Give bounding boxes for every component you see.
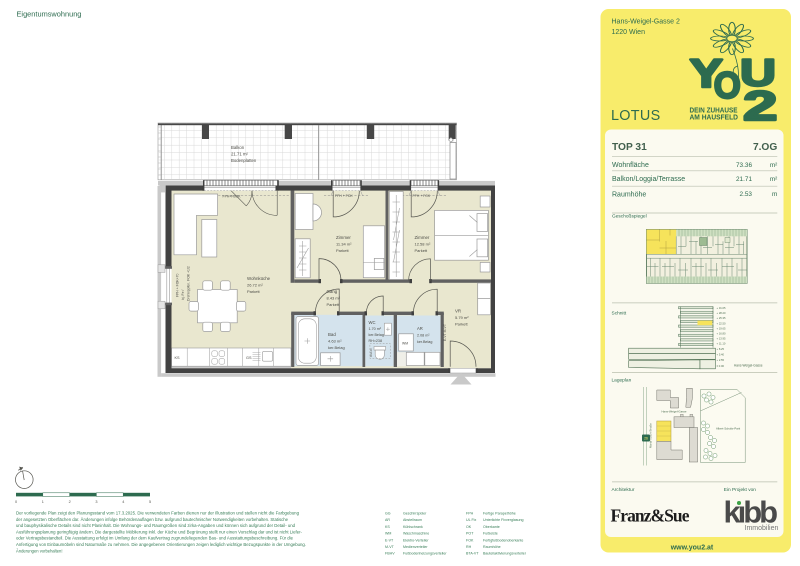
svg-text:Zimmer: Zimmer <box>415 235 430 240</box>
svg-text:ker.Belag: ker.Belag <box>328 345 345 350</box>
svg-text:O: O <box>714 65 741 106</box>
svg-text:GG: GG <box>385 512 391 516</box>
svg-text:Raumhöhe: Raumhöhe <box>612 191 646 198</box>
svg-text:Parkett: Parkett <box>455 322 469 327</box>
svg-text:Balkon/Loggia/Terrasse: Balkon/Loggia/Terrasse <box>612 176 685 183</box>
svg-text:4: 4 <box>122 500 124 504</box>
svg-text:2: 2 <box>743 82 778 129</box>
svg-text:FPH+FBOK: FPH+FBOK <box>223 194 242 198</box>
svg-text:Bad: Bad <box>328 332 336 337</box>
svg-text:0: 0 <box>15 500 17 504</box>
svg-text:Schnitt: Schnitt <box>612 311 627 317</box>
svg-text:Franz&Sue: Franz&Sue <box>611 506 690 526</box>
svg-text:4.63 m²: 4.63 m² <box>328 339 342 344</box>
svg-text:oder Vertragsbestandteil. Die: oder Vertragsbestandteil. Die Ausstattun… <box>16 536 294 541</box>
svg-text:Balkon: Balkon <box>231 145 245 150</box>
svg-text:Anfertigung von Einbaumöbeln s: Anfertigung von Einbaumöbeln sind Naturm… <box>16 542 306 547</box>
svg-text:7.OG: 7.OG <box>753 142 777 153</box>
svg-text:2.53: 2.53 <box>740 191 753 198</box>
svg-text:2.08 m²: 2.08 m² <box>417 334 430 338</box>
svg-text:Elektro-Verteiler: Elektro-Verteiler <box>403 538 429 542</box>
svg-text:TOP 31: TOP 31 <box>612 142 647 153</box>
svg-text:FPH + FOK: FPH + FOK <box>413 194 431 198</box>
svg-text:Fertigfußbodenoberkante: Fertigfußbodenoberkante <box>483 538 523 542</box>
svg-text:+ 13.95: + 13.95 <box>717 337 727 341</box>
svg-text:Architektur: Architektur <box>612 487 635 493</box>
svg-text:WC: WC <box>369 320 376 325</box>
svg-text:3: 3 <box>95 500 97 504</box>
svg-text:ker.Belag: ker.Belag <box>417 340 432 344</box>
svg-text:8.43 m²: 8.43 m² <box>327 296 341 301</box>
svg-text:Der vorliegende Plan zeigt den: Der vorliegende Plan zeigt den Planungss… <box>16 511 300 516</box>
svg-text:Bodenplatten: Bodenplatten <box>231 158 257 163</box>
svg-text:Zimmer: Zimmer <box>336 235 351 240</box>
svg-text:21.71: 21.71 <box>736 176 752 183</box>
svg-text:FBHV: FBHV <box>385 552 395 556</box>
svg-text:FPH + FOK+70: FPH + FOK+70 <box>176 274 180 297</box>
svg-text:Hans-Weigel-Gasse: Hans-Weigel-Gasse <box>734 364 763 368</box>
svg-text:Fußleiste: Fußleiste <box>483 532 498 536</box>
svg-text:Raumhöhe: Raumhöhe <box>483 545 501 549</box>
svg-text:Gang: Gang <box>327 289 338 294</box>
svg-text:+ 8.25: + 8.25 <box>717 347 725 351</box>
svg-text:Hans-Weigel-Gasse 2: Hans-Weigel-Gasse 2 <box>612 19 680 26</box>
svg-text:+ 2.55: + 2.55 <box>717 358 725 362</box>
svg-text:BTA-VT: BTA-VT <box>466 552 479 556</box>
svg-text:Parkett: Parkett <box>327 302 341 307</box>
svg-text:Geschirrspüler: Geschirrspüler <box>403 512 427 516</box>
svg-text:Abstellraum: Abstellraum <box>403 518 422 522</box>
svg-text:GS: GS <box>246 356 252 360</box>
svg-text:+ 5.40: + 5.40 <box>717 353 725 357</box>
svg-text:Fußbodenheizungsverteiler: Fußbodenheizungsverteiler <box>403 552 447 556</box>
svg-text:Bauteilaktivierungsverteiler: Bauteilaktivierungsverteiler <box>483 552 527 556</box>
svg-text:90x120: 90x120 <box>369 348 373 357</box>
svg-text:m: m <box>772 191 777 198</box>
svg-text:Fertige Parapethöhe: Fertige Parapethöhe <box>483 512 516 516</box>
svg-text:m²: m² <box>770 162 777 169</box>
svg-text:1220 Wien: 1220 Wien <box>612 29 646 36</box>
svg-text:12.58 m²: 12.58 m² <box>415 242 431 247</box>
svg-text:73.36: 73.36 <box>736 162 752 169</box>
svg-text:Geschoßspiegel: Geschoßspiegel <box>612 214 647 220</box>
svg-text:Albert-Schultz-Park: Albert-Schultz-Park <box>716 427 741 431</box>
svg-text:UL Fix: UL Fix <box>466 518 476 522</box>
svg-text:m²: m² <box>770 176 777 183</box>
svg-text:Parkett: Parkett <box>415 248 429 253</box>
svg-text:KS: KS <box>175 356 181 360</box>
svg-text:AM HAUSFELD: AM HAUSFELD <box>690 113 739 122</box>
svg-text:Medienverteiler: Medienverteiler <box>403 545 428 549</box>
svg-text:AR: AR <box>385 518 390 522</box>
svg-text:www.you2.at: www.you2.at <box>670 545 714 552</box>
svg-text:26: 26 <box>644 437 648 441</box>
svg-text:LOTUS: LOTUS <box>611 108 660 124</box>
svg-text:FPH: FPH <box>466 512 474 516</box>
svg-text:OK: OK <box>466 525 472 529</box>
svg-text:+ 31.05: + 31.05 <box>717 306 727 310</box>
svg-text:ker.Belag: ker.Belag <box>369 333 384 337</box>
svg-text:5.79 m²: 5.79 m² <box>455 315 469 320</box>
svg-text:FOK: FOK <box>466 538 474 542</box>
svg-text:Unterlichte Fixverglasung: Unterlichte Fixverglasung <box>483 518 524 522</box>
svg-text:POT: POT <box>466 532 474 536</box>
svg-text:WM: WM <box>402 341 408 345</box>
svg-text:bj. Fe /: bj. Fe / <box>181 290 185 300</box>
svg-text:Immobilien: Immobilien <box>745 525 779 532</box>
svg-text:E-VT M-VT: E-VT M-VT <box>443 324 447 341</box>
svg-text:± 0.00: ± 0.00 <box>717 364 725 368</box>
svg-text:1: 1 <box>42 500 44 504</box>
svg-text:1.70 m²: 1.70 m² <box>369 327 382 331</box>
svg-text:Parkett: Parkett <box>247 289 261 294</box>
svg-text:FPH + FOK: FPH + FOK <box>335 194 353 198</box>
svg-text:11.34 m²: 11.34 m² <box>336 242 352 247</box>
svg-text:Waschmaschine: Waschmaschine <box>403 532 429 536</box>
svg-text:+ 25.35: + 25.35 <box>717 316 727 320</box>
svg-text:Drehkippfen. FOK +1/2: Drehkippfen. FOK +1/2 <box>187 266 191 301</box>
svg-text:Eigentumswohnung: Eigentumswohnung <box>17 10 82 19</box>
svg-text:VR: VR <box>455 309 461 314</box>
svg-text:Kühlschrank: Kühlschrank <box>403 525 423 529</box>
svg-text:+ 22.50: + 22.50 <box>717 321 727 325</box>
svg-text:und bauphysikalische Details s: und bauphysikalische Details sind nicht … <box>16 523 296 528</box>
svg-text:der angesetzten Oberflächen da: der angesetzten Oberflächen dar. Änderun… <box>16 517 289 522</box>
svg-text:21.71 m²: 21.71 m² <box>231 152 249 157</box>
svg-text:M-VT: M-VT <box>385 545 395 549</box>
svg-text:Parkett: Parkett <box>336 248 350 253</box>
svg-text:+ 11.10: + 11.10 <box>717 342 726 346</box>
svg-text:E-VT: E-VT <box>385 538 394 542</box>
svg-text:Wohnfläche: Wohnfläche <box>612 162 649 169</box>
svg-text:Hans-Weigel-Gasse: Hans-Weigel-Gasse <box>662 410 687 414</box>
svg-text:RH≈238: RH≈238 <box>369 339 383 343</box>
svg-text:RH: RH <box>466 545 472 549</box>
svg-text:Wohnküche: Wohnküche <box>247 276 271 281</box>
svg-text:Ein Projekt von: Ein Projekt von <box>724 487 757 493</box>
svg-text:+ 28.20: + 28.20 <box>717 311 727 315</box>
svg-text:Oberkante: Oberkante <box>483 525 500 529</box>
svg-text:5: 5 <box>149 500 151 504</box>
svg-text:2: 2 <box>69 500 71 504</box>
svg-text:+ 19.65: + 19.65 <box>717 326 727 330</box>
svg-text:KS: KS <box>385 525 390 529</box>
svg-text:26.72 m²: 26.72 m² <box>247 283 263 288</box>
svg-text:AR: AR <box>417 326 423 331</box>
svg-text:+ 16.80: + 16.80 <box>717 332 727 336</box>
svg-text:WM: WM <box>385 532 391 536</box>
svg-text:Lageplan: Lageplan <box>612 378 632 384</box>
svg-text:Änderungen vorbehalten!: Änderungen vorbehalten! <box>16 548 63 553</box>
svg-text:Ausführungsplanung geringfügig: Ausführungsplanung geringfügig ändern. D… <box>16 529 303 534</box>
